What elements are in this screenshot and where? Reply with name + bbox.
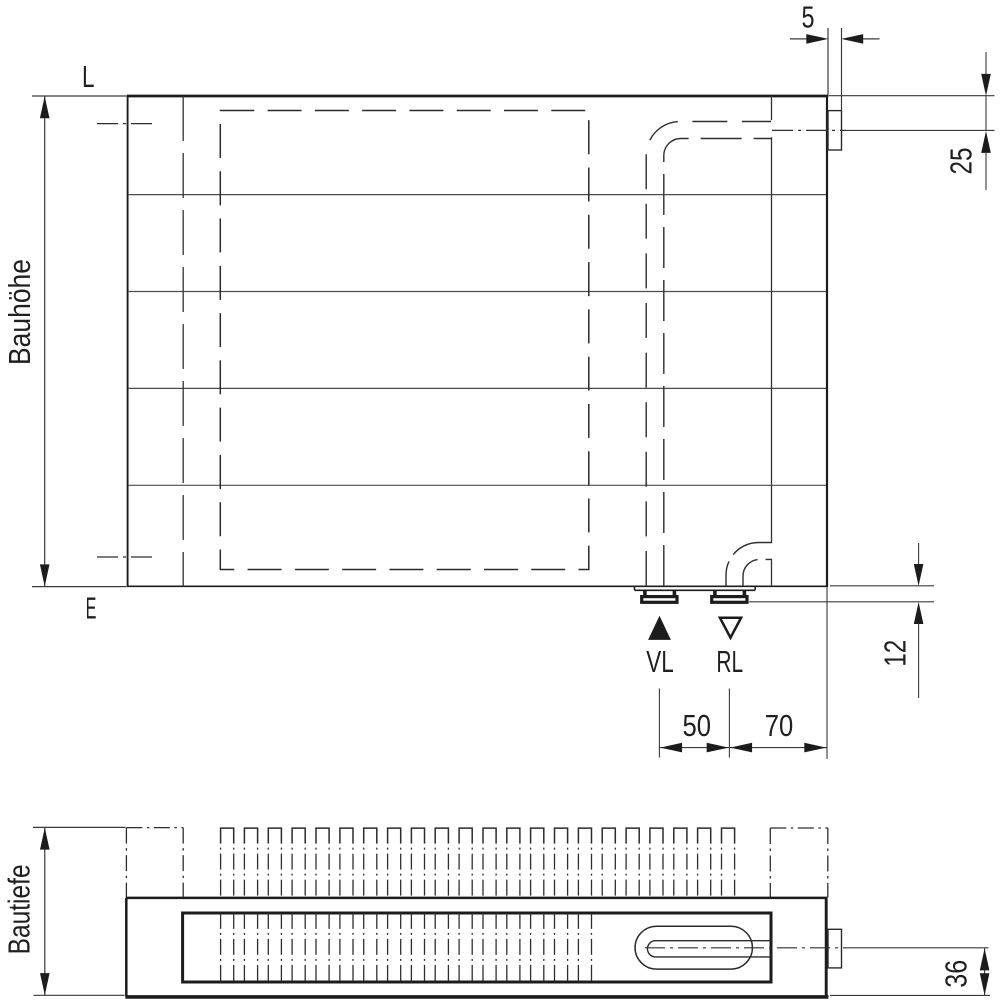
- svg-text:12: 12: [878, 640, 913, 667]
- svg-text:RL: RL: [716, 644, 743, 679]
- svg-text:E: E: [86, 590, 97, 625]
- svg-text:70: 70: [765, 708, 794, 743]
- svg-text:Bautiefe: Bautiefe: [1, 864, 36, 954]
- svg-text:L: L: [82, 59, 95, 94]
- svg-text:VL: VL: [646, 644, 674, 679]
- svg-text:Bauhöhe: Bauhöhe: [2, 259, 37, 365]
- svg-text:50: 50: [682, 708, 711, 743]
- svg-text:36: 36: [939, 960, 974, 988]
- svg-text:5: 5: [802, 0, 815, 34]
- svg-text:25: 25: [944, 148, 979, 175]
